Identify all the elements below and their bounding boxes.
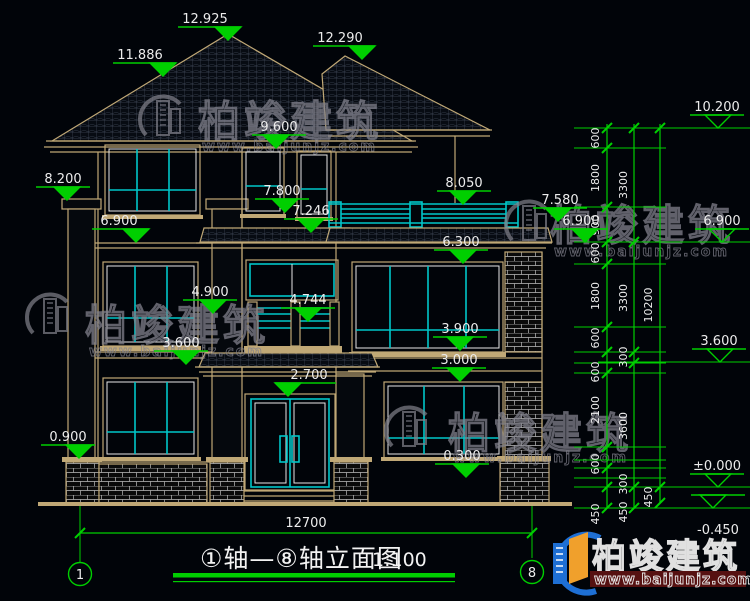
elevation-triangle bbox=[700, 495, 726, 508]
elevation-marker: 11.886 bbox=[113, 48, 176, 76]
elevation-value: 12.290 bbox=[317, 31, 363, 46]
elevation-canvas: 柏竣建筑www.baijunjz.com柏竣建筑www.baijunjz.com… bbox=[0, 0, 750, 601]
elevation-triangle bbox=[54, 187, 80, 200]
entry-steps bbox=[232, 491, 348, 501]
watermark-brand-icon bbox=[386, 407, 426, 446]
elevation-value: 7.800 bbox=[263, 184, 300, 199]
elevation-value: 7.246 bbox=[292, 204, 329, 219]
chain-dim-label: 600 bbox=[589, 128, 602, 149]
chain-dim-label: 600 bbox=[589, 454, 602, 475]
elevation-marker: 3.000 bbox=[432, 353, 486, 381]
elevation-value: 3.000 bbox=[440, 353, 477, 368]
elevation-value: 6.900 bbox=[100, 214, 137, 229]
logo-building-orange bbox=[569, 532, 588, 584]
floor-slab-6900 bbox=[93, 243, 212, 248]
elevation-value: 0.300 bbox=[443, 449, 480, 464]
chain-dim-label: 10200 bbox=[642, 288, 655, 323]
axis-number: 1 bbox=[76, 568, 84, 583]
elevation-value: 7.580 bbox=[541, 193, 578, 208]
elevation-triangle bbox=[707, 349, 733, 362]
elevation-value: 6.900 bbox=[562, 214, 599, 229]
drawing-scale: 1:100 bbox=[372, 549, 427, 571]
elevation-marker: 4.744 bbox=[281, 293, 335, 321]
brand-logo-group: 柏竣建筑www.baijunjz.com bbox=[553, 532, 750, 593]
chain-dim-label: 300 bbox=[617, 347, 630, 368]
chain-dim-label: 1800 bbox=[589, 282, 602, 310]
elevation-value: 3.900 bbox=[441, 322, 478, 337]
watermark-brand-icon bbox=[27, 294, 67, 333]
chain-dim-label: 450 bbox=[617, 502, 630, 523]
title-underline-thin bbox=[173, 581, 455, 582]
elevation-triangle bbox=[215, 27, 241, 40]
elevation-marker: -0.450 bbox=[691, 495, 745, 538]
elevation-marker: ±0.000 bbox=[690, 459, 744, 487]
width-dim-value: 12700 bbox=[285, 516, 326, 531]
elevation-triangle bbox=[447, 368, 473, 381]
elevation-triangle bbox=[123, 229, 149, 242]
elevation-triangle bbox=[450, 250, 476, 263]
chain-dim-label: 450 bbox=[589, 504, 602, 525]
chain-dim-label: 2100 bbox=[589, 396, 602, 424]
chain-dim-label: 300 bbox=[617, 474, 630, 495]
elevation-marker: 3.900 bbox=[433, 322, 487, 350]
axis-number: 8 bbox=[528, 566, 536, 581]
elevation-value: 3.600 bbox=[162, 336, 199, 351]
elevation-marker: 12.290 bbox=[313, 31, 375, 59]
elevation-triangle bbox=[450, 191, 476, 204]
brand-logo: 柏竣建筑www.baijunjz.com bbox=[553, 532, 750, 593]
elevation-value: 4.744 bbox=[289, 293, 326, 308]
elevation-marker: 12.925 bbox=[178, 12, 241, 40]
watermark: 柏竣建筑www.baijunjz.com bbox=[27, 294, 269, 360]
elevation-marker: 8.050 bbox=[437, 176, 491, 204]
pier-capital-left bbox=[62, 199, 101, 209]
elevation-value: 11.886 bbox=[117, 48, 163, 63]
chain-dim-label: 1800 bbox=[589, 164, 602, 192]
elevation-value: 0.900 bbox=[49, 430, 86, 445]
window-3f-left bbox=[102, 145, 203, 219]
elevation-value: 8.050 bbox=[445, 176, 482, 191]
elevation-value: 12.925 bbox=[182, 12, 228, 27]
cad-elevation-drawing: 柏竣建筑www.baijunjz.com柏竣建筑www.baijunjz.com… bbox=[0, 0, 750, 601]
pier-entry-right bbox=[336, 374, 364, 458]
chain-dim-label: 3300 bbox=[617, 171, 630, 199]
title-block: 1270018①轴—⑧轴立面图1:100 bbox=[69, 506, 544, 586]
elevation-value: 8.200 bbox=[44, 172, 81, 187]
watermark-site-text: www.baijunjz.com bbox=[554, 244, 729, 260]
elevation-triangle bbox=[453, 464, 479, 477]
elevation-triangle bbox=[349, 46, 375, 59]
elevation-value: 6.300 bbox=[442, 235, 479, 250]
elevation-value: 9.600 bbox=[260, 120, 297, 135]
chain-dim-label: 600 bbox=[589, 243, 602, 264]
elevation-value: -0.450 bbox=[697, 523, 739, 538]
title-underline-thick bbox=[173, 573, 455, 578]
corner-pier-brick-2f bbox=[505, 252, 542, 352]
elevation-value: 4.900 bbox=[191, 285, 228, 300]
chain-dim-label: 600 bbox=[589, 328, 602, 349]
elevation-triangle bbox=[705, 474, 731, 487]
elevation-value: ±0.000 bbox=[693, 459, 741, 474]
elevation-triangle bbox=[705, 115, 731, 128]
chain-dim-label: 600 bbox=[589, 362, 602, 383]
ground-line bbox=[38, 502, 572, 506]
window-1f-left bbox=[100, 378, 201, 461]
skirt-roof-right bbox=[326, 228, 552, 242]
skirt-fascia bbox=[196, 243, 552, 248]
logo-site-text: www.baijunjz.com bbox=[594, 572, 750, 588]
chain-dim-label: 3600 bbox=[617, 412, 630, 440]
logo-building-blue bbox=[553, 543, 567, 584]
entry-door bbox=[245, 394, 335, 490]
elevation-marker: 8.200 bbox=[36, 172, 90, 200]
elevation-value: 3.600 bbox=[700, 334, 737, 349]
elevation-value: 2.700 bbox=[290, 368, 327, 383]
watermark-site-text: www.baijunjz.com bbox=[202, 139, 377, 155]
terrace-railing bbox=[329, 202, 518, 227]
chain-dim-label: 450 bbox=[642, 487, 655, 508]
elevation-marker: 10.200 bbox=[690, 100, 744, 128]
elevation-value: 10.200 bbox=[694, 100, 740, 115]
window-2f-right bbox=[349, 262, 506, 357]
chain-dim-label: 3300 bbox=[617, 284, 630, 312]
elevation-value: 6.900 bbox=[703, 214, 740, 229]
elevation-marker: 3.600 bbox=[692, 334, 746, 362]
